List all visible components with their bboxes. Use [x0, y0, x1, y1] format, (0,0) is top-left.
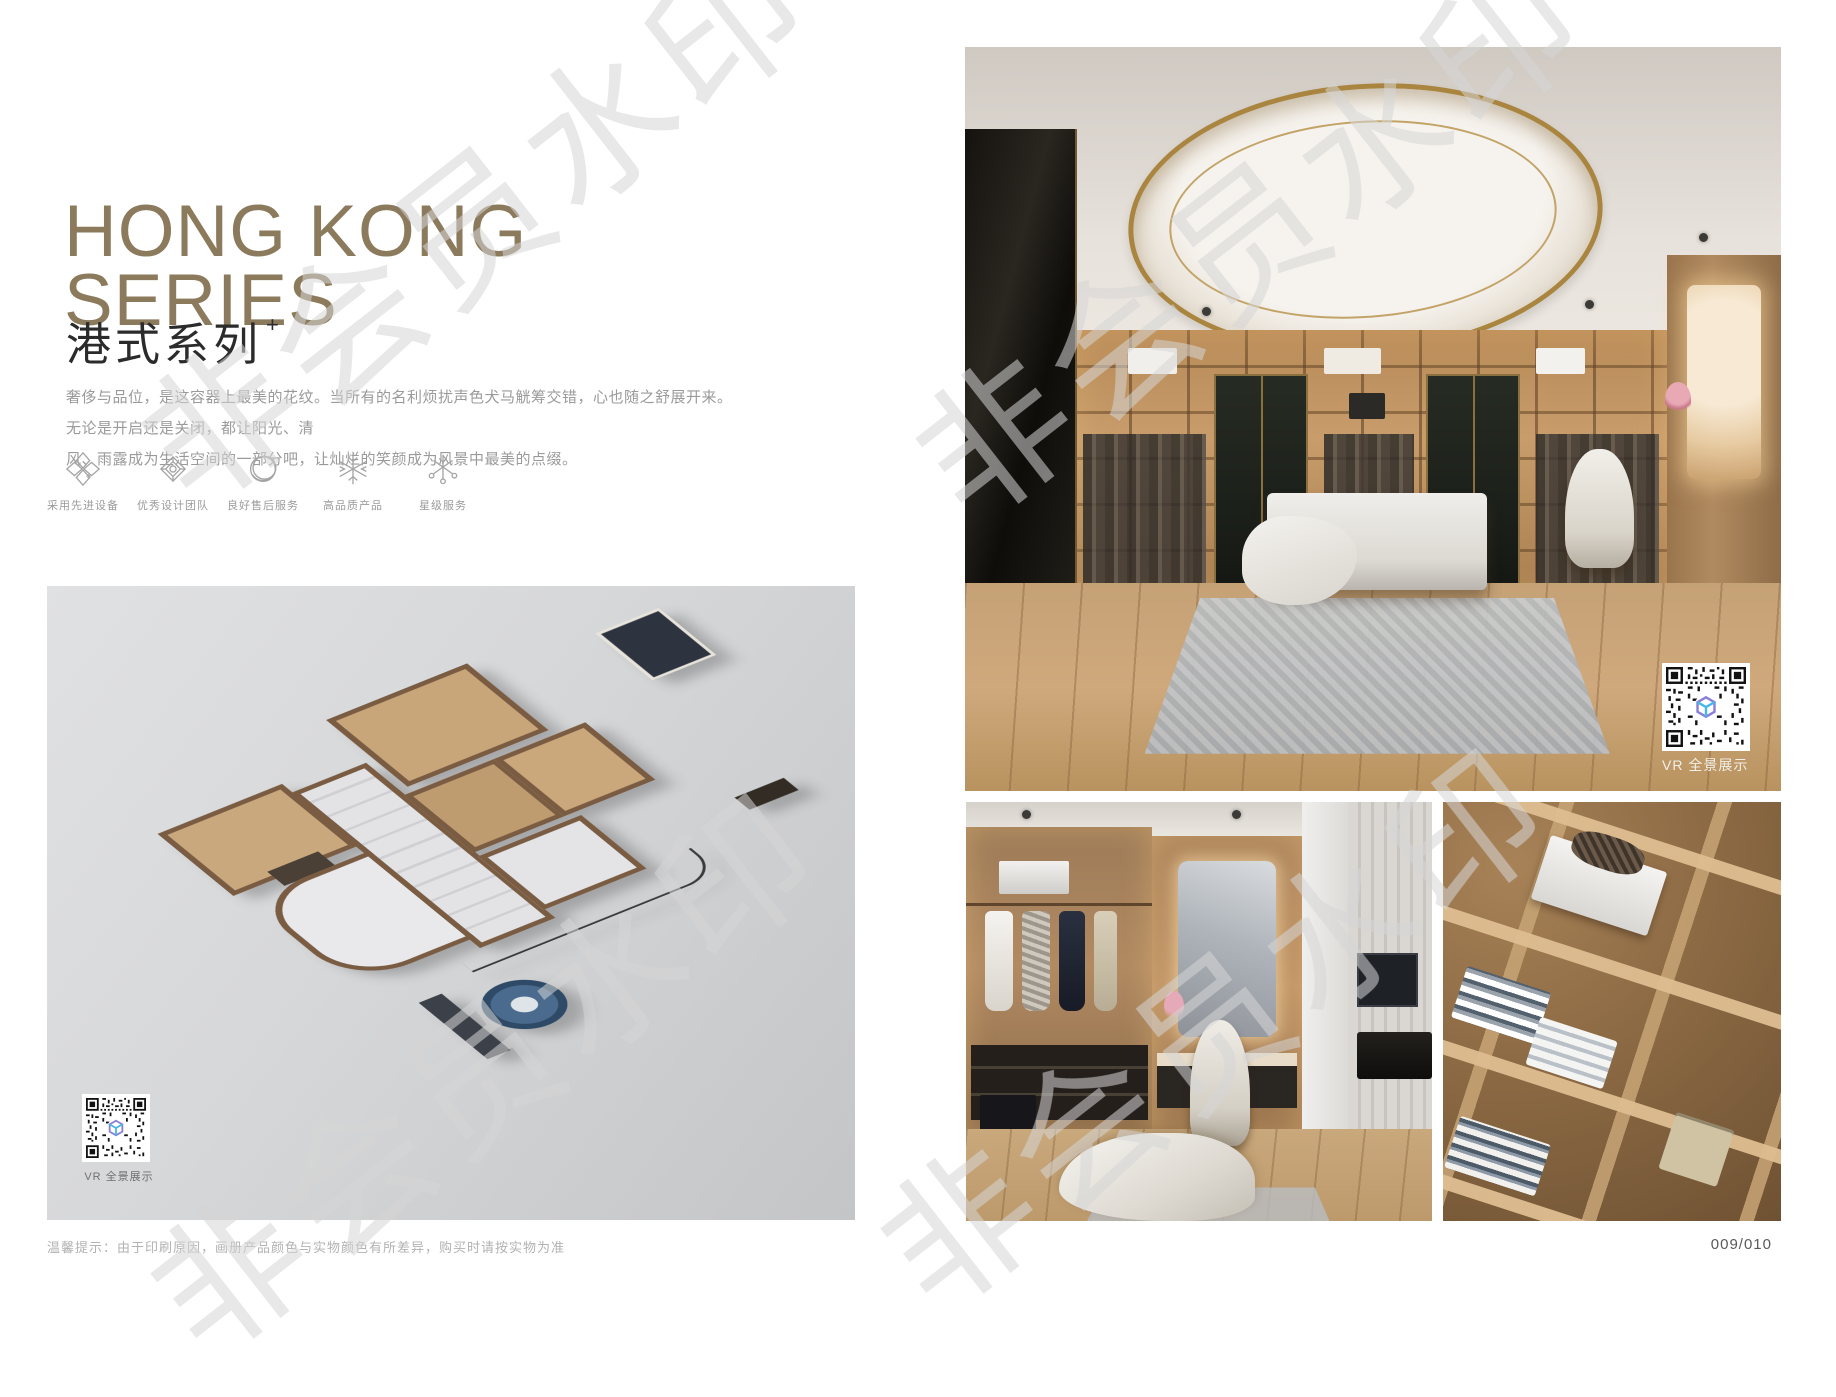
- storage-box: [1536, 348, 1585, 374]
- vr-panorama-badge: VR 全景展示: [1662, 755, 1748, 775]
- pink-flowers: [1665, 382, 1691, 416]
- shelf-closeup-photo: [1443, 802, 1781, 1221]
- grey-rug: [1145, 598, 1610, 754]
- diamond-rosette-icon: [154, 450, 192, 488]
- double-ring-icon: [244, 450, 282, 488]
- storage-box: [999, 861, 1069, 895]
- storage-box: [1128, 348, 1177, 374]
- feature-design-team: 优秀设计团队: [140, 450, 206, 513]
- pink-flowers: [1164, 991, 1184, 1021]
- print-disclaimer: 温馨提示：由于印刷原因，画册产品颜色与实物颜色有所差异，购买时请按实物为准: [47, 1237, 565, 1256]
- vanity-mirror: [1687, 285, 1760, 478]
- page-number: 009/010: [1711, 1236, 1772, 1253]
- quad-diamond-icon: [64, 450, 102, 488]
- black-boxes: [980, 1095, 1036, 1133]
- star-snowflake-icon: [424, 450, 462, 488]
- spotlight: [1202, 307, 1211, 316]
- floorplan-qr-code: [82, 1094, 150, 1162]
- isometric-floorplan: [120, 648, 775, 1023]
- floorplan-card: VR 全景展示: [47, 586, 855, 1220]
- hanging-garment-patterned: [1022, 911, 1050, 1012]
- hanging-garment-navy: [1059, 911, 1085, 1012]
- feature-label: 优秀设计团队: [137, 497, 209, 513]
- snowflake-icon: [334, 450, 372, 488]
- floorplan-vr-badge: VR 全景展示: [79, 1168, 159, 1184]
- catalog-page: { "header": { "title_line1": "HONG KONG"…: [0, 0, 1836, 1307]
- spotlight: [1232, 810, 1241, 819]
- feature-label: 高品质产品: [323, 497, 383, 513]
- series-subtitle-text: 港式系列: [66, 319, 262, 370]
- dressing-table-photo: [966, 802, 1432, 1221]
- series-title-line1: HONG KONG: [64, 197, 527, 266]
- vanity-mirror: [1178, 861, 1276, 1037]
- description-line-1: 奢侈与品位，是这容器上最美的花纹。当所有的名利烦扰声色犬马觥筹交错，心也随之舒展…: [66, 382, 746, 444]
- bed: [595, 608, 716, 681]
- wall-artwork: [1357, 953, 1418, 1007]
- feature-advanced-equipment: 采用先进设备: [50, 450, 116, 513]
- dark-sideboard: [1357, 1032, 1432, 1078]
- vr-qr-code: [1662, 663, 1750, 751]
- folded-linens: [1324, 348, 1381, 374]
- feature-label: 采用先进设备: [47, 497, 119, 513]
- feature-label: 星级服务: [419, 497, 467, 513]
- subtitle-plus-mark: +: [266, 312, 283, 337]
- dark-glass-wardrobe: [965, 129, 1077, 635]
- series-subtitle-cn: 港式系列+: [66, 308, 283, 373]
- hanging-garment-white: [985, 911, 1013, 1012]
- main-walkin-closet-photo: VR 全景展示: [965, 47, 1781, 791]
- handbag: [1349, 393, 1386, 419]
- feature-label: 良好售后服务: [227, 497, 299, 513]
- white-column: [1302, 802, 1349, 1137]
- hanging-garment-beige: [1094, 911, 1117, 1012]
- feature-star-service: 星级服务: [410, 450, 476, 513]
- feature-high-quality: 高品质产品: [320, 450, 386, 513]
- feature-after-sales: 良好售后服务: [230, 450, 296, 513]
- white-vanity-chair: [1565, 449, 1634, 568]
- desk: [735, 778, 799, 810]
- feature-list: 采用先进设备 优秀设计团队 良好售后服务 高品质产品 星级服务: [50, 450, 476, 513]
- wardrobe-shelf: [966, 903, 1152, 906]
